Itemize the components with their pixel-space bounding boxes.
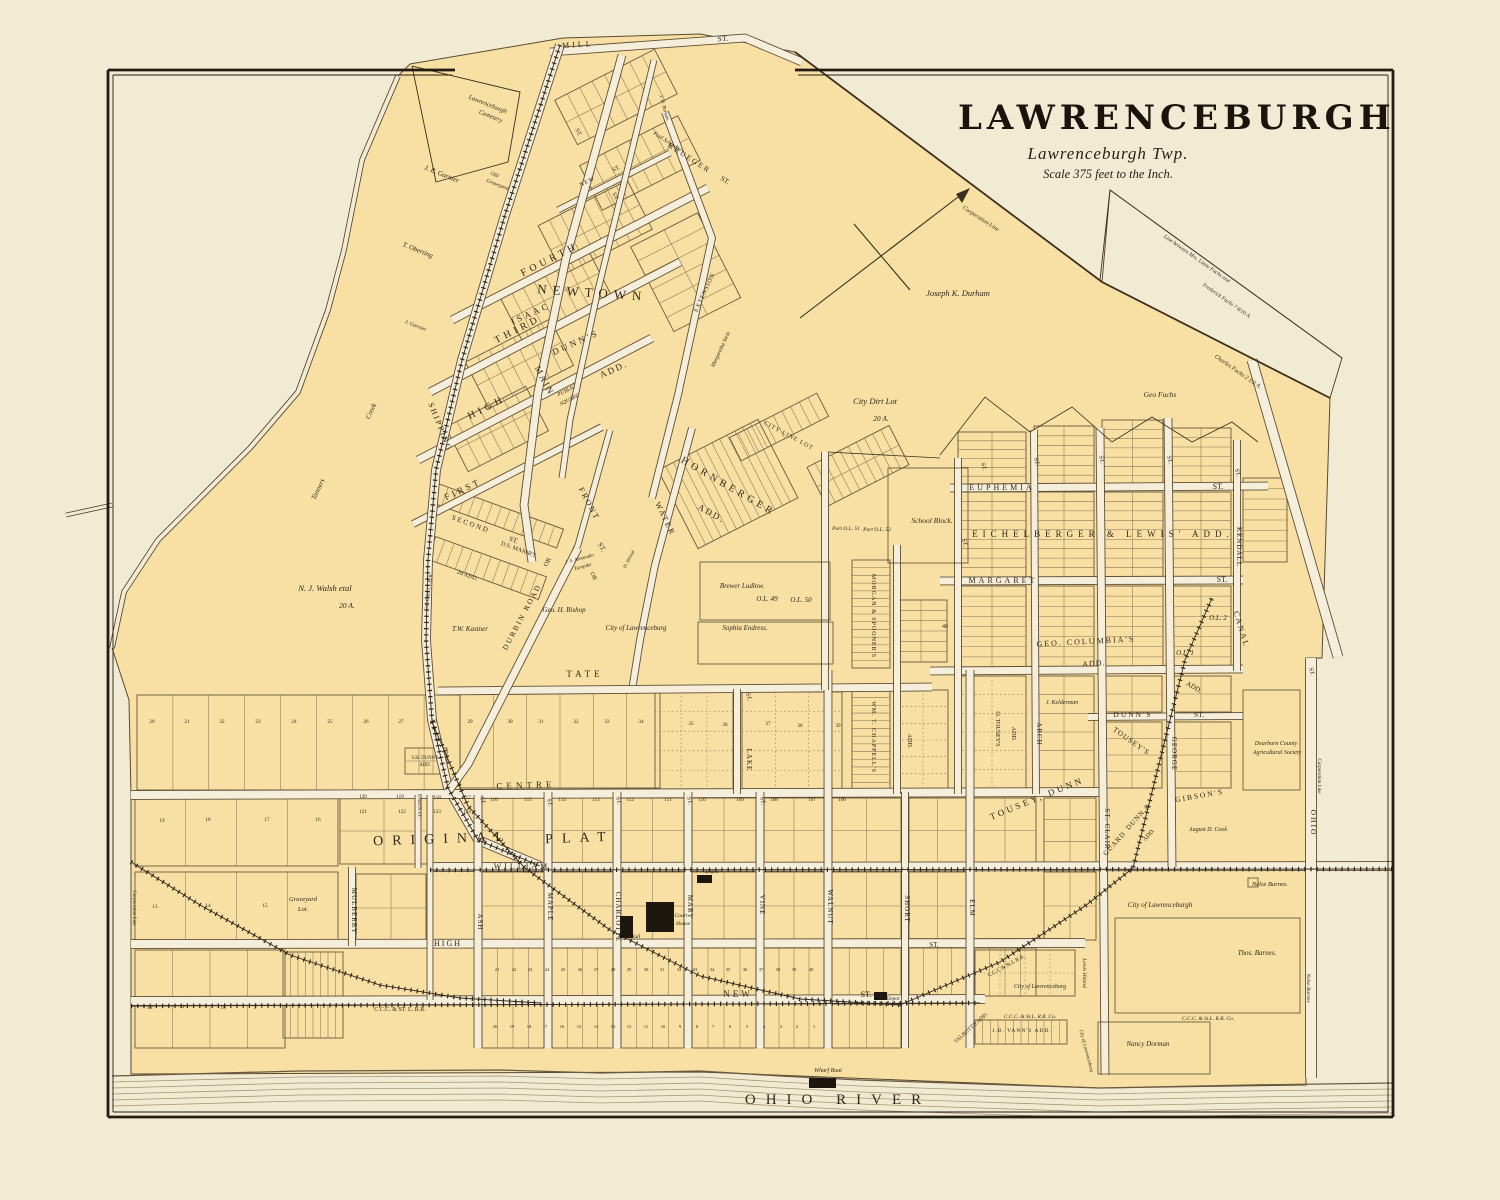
lot-number: 11: [180, 1004, 185, 1010]
map-label: C.C.C. & St.L. R.R. Co.: [1004, 1014, 1056, 1020]
lot-number: 32: [573, 719, 579, 725]
map-label: Brewer Ludlow.: [720, 582, 765, 590]
lot-number: 22: [219, 719, 225, 725]
map-label: MARGARET: [969, 576, 1038, 585]
lot-number: 10: [661, 1024, 666, 1029]
lot-number: 28: [431, 719, 437, 725]
lot-number: 112: [626, 797, 634, 803]
map-label: WILLIAM: [494, 862, 551, 871]
street: [131, 943, 1085, 944]
map-label: Wharf Boat: [814, 1067, 842, 1074]
lot-number: 30: [507, 719, 513, 725]
lot-number: 123: [433, 809, 441, 815]
lot-number: 11: [644, 1024, 649, 1029]
map-label: Thos. Barnes.: [1238, 949, 1277, 957]
map-label: City of Lawrenceburg: [606, 624, 667, 632]
lot-number: 18: [527, 1024, 532, 1029]
map-label: Graveyard: [289, 896, 318, 903]
map-label: C.C.C. & St.L. R.R. Co.: [1182, 1016, 1234, 1022]
lot-number: 26: [363, 719, 369, 725]
lot-number: 21: [184, 719, 190, 725]
lot-number: 124: [463, 809, 471, 815]
map-label: Part O.L. 51: [831, 526, 860, 532]
map-label: Nelse Barnes.: [1251, 881, 1288, 888]
map-label: City of Lawrenceburg: [1014, 983, 1066, 990]
map-label: O.L. 2: [1209, 614, 1227, 622]
lot-number: 20: [493, 1024, 498, 1029]
map-label: WALNUT: [826, 889, 834, 925]
lot-number: 37: [765, 721, 771, 727]
lot-number: 25: [561, 967, 566, 972]
lot-number: 40: [809, 967, 814, 972]
lot-number: 39: [792, 967, 797, 972]
map-label: 40: [942, 624, 948, 630]
map-label: ST.: [861, 990, 872, 999]
map-label: SHORT: [903, 895, 911, 923]
map-label: VINE: [758, 895, 766, 916]
map-label: PLAT: [545, 830, 615, 847]
lot-number: 108: [770, 797, 778, 803]
map-canvas: MILLST.KRUEGERST.Paul SchindlerJ. H. Bur…: [0, 0, 1500, 1200]
map-label: LAKE: [745, 749, 753, 772]
map-label: ADD.: [419, 763, 431, 768]
lot-number: 16: [560, 1024, 565, 1029]
lot-number: 9: [254, 1005, 257, 1011]
map-label: GEORGE: [1170, 737, 1178, 771]
map-label: Geo. H. Bishop: [542, 606, 586, 614]
map-label: Dearborn County: [1254, 741, 1298, 747]
lot-number: 109: [736, 797, 744, 803]
lot-number: 24: [545, 967, 550, 972]
lot-number: 35: [688, 721, 694, 727]
map-label: Lewis Hiland: [1081, 957, 1087, 988]
lot-number: 27: [398, 719, 404, 725]
street: [131, 999, 985, 1001]
lot-number: 23: [255, 719, 261, 725]
map-label: ADD.: [1082, 658, 1106, 668]
map-label: Corporation Line: [131, 890, 136, 926]
map-label: O.L. 1: [1176, 649, 1194, 657]
map-label: S.H. DUNN'S: [411, 756, 438, 761]
lot-number: 121: [359, 809, 367, 815]
lot-number: 37: [759, 967, 764, 972]
map-label: City of Lawrenceburgh: [1128, 901, 1193, 909]
map-label: Sophia Endress.: [722, 624, 767, 632]
lot-number: 14: [205, 903, 211, 909]
map-label: Court: [675, 913, 688, 919]
building-footprint: [874, 992, 887, 1000]
map-label: C.C.C. & ST. L. R.R.: [374, 1007, 426, 1013]
lot-number: 34: [710, 967, 715, 972]
map-label: OHIO: [1309, 810, 1318, 837]
map-label: ST.: [1194, 710, 1204, 719]
lot-number: 33: [693, 967, 698, 972]
lot-number: 29: [627, 967, 632, 972]
lot-number: 35: [726, 967, 731, 972]
building-footprint: [697, 875, 712, 883]
lot-number: 28: [611, 967, 616, 972]
lot-number: 122: [398, 809, 406, 815]
lot-number: 15: [262, 903, 268, 909]
map-label: N. J. Walsh etal: [297, 583, 352, 593]
lot-number: 117: [463, 795, 471, 801]
map-label: WM. T. CHAPPELL'S: [870, 701, 876, 773]
lot-number: 114: [558, 797, 566, 803]
map-label: Corporation Line: [1316, 758, 1321, 794]
lot-number: 106: [838, 797, 846, 803]
lot-number: 14: [594, 1024, 599, 1029]
map-label: EICHELBERGER & LEWIS' ADD.: [972, 529, 1234, 539]
map-label: O.L. 49: [756, 595, 778, 603]
lot-number: 13: [611, 1024, 616, 1029]
map-label: ELM: [968, 899, 976, 917]
map-label: CENTRE: [496, 779, 555, 791]
map-label: CHARLOTTE: [614, 892, 622, 943]
street: [930, 669, 1243, 671]
map-label: Lot.: [297, 906, 309, 913]
lot-number: 39: [835, 723, 841, 729]
map-label: NEW: [723, 989, 753, 999]
map-label: Joseph K. Durham: [926, 288, 990, 298]
lot-number: 118: [433, 795, 441, 801]
map-label: August D. Cook: [1188, 827, 1228, 833]
street: [1088, 716, 1243, 717]
lot-number: 34: [638, 719, 644, 725]
lot-number: 115: [524, 797, 532, 803]
lot-number: 19: [159, 818, 165, 824]
lot-number: 29: [467, 719, 473, 725]
lot-number: 38: [797, 723, 803, 729]
map-label: Part O.L. 52: [862, 527, 891, 533]
map-label: UNION ST.: [416, 794, 421, 818]
lot-number: 21: [495, 967, 500, 972]
lot-number: 36: [743, 967, 748, 972]
map-label: ADD.: [1010, 727, 1016, 742]
lot-number: 38: [776, 967, 781, 972]
map-label: 20 A.: [873, 414, 889, 423]
map-label: House: [675, 921, 691, 927]
lot-number: 111: [664, 797, 672, 803]
map-label: DUNN'S: [1113, 710, 1152, 719]
map-label: Jail: [632, 934, 641, 940]
map-label: City Dirt Lot: [853, 396, 898, 406]
map-label: MULBERRY: [350, 888, 358, 935]
lot-number: 32: [677, 967, 682, 972]
map-label: ST.: [717, 34, 728, 44]
lot-number: 36: [722, 722, 728, 728]
map-label: J. Kelderman: [1046, 700, 1078, 706]
lot-number: 25: [327, 719, 333, 725]
map-label: ST.: [929, 941, 939, 949]
map-label: Agricultural Society: [1252, 750, 1302, 756]
lot-number: 31: [538, 719, 544, 725]
street: [438, 687, 932, 691]
map-label: Depot: [885, 996, 900, 1002]
map-label: ARCH: [1035, 722, 1043, 745]
map-label: ST.: [1213, 482, 1224, 491]
lot-number: 30: [644, 967, 649, 972]
lot-number: 12: [147, 1005, 153, 1011]
lot-number: 23: [528, 967, 533, 972]
map-label: Geo Fuchs: [1144, 390, 1177, 399]
map-label: OHIO RIVER: [745, 1092, 931, 1108]
map-label: 20 A.: [339, 601, 355, 610]
lot-number: 113: [592, 797, 600, 803]
lawrenceburgh-plat-map: MILLST.KRUEGERST.Paul SchindlerJ. H. Bur…: [0, 0, 1500, 1200]
lot-number: 119: [396, 794, 404, 800]
lot-number: 22: [512, 967, 517, 972]
map-label: School Block.: [911, 516, 952, 525]
lot-number: 18: [205, 817, 211, 823]
map-label: T.W. Kastner: [452, 625, 488, 633]
lot-number: 110: [698, 797, 706, 803]
lot-number: 15: [577, 1024, 582, 1029]
map-label: KENDALL: [1235, 527, 1243, 567]
lot-number: 17: [543, 1024, 548, 1029]
lot-number: 20: [149, 719, 155, 725]
lot-number: 27: [594, 967, 599, 972]
lot-number: 33: [604, 719, 610, 725]
street: [428, 866, 1392, 867]
lot-number: 31: [660, 967, 665, 972]
map-label: MORGAN & SPOONER'S: [870, 574, 876, 658]
lot-number: 120: [359, 794, 367, 800]
lot-number: 26: [578, 967, 583, 972]
lot-number: 13: [152, 904, 158, 910]
map-label: J.B. VANN'S ADD.: [992, 1028, 1051, 1034]
map-label: O. TOUSEY'S: [994, 711, 1000, 746]
map-label: MAPLE: [546, 893, 554, 922]
lot-number: 19: [510, 1024, 515, 1029]
map-label: Nancy Dorman: [1126, 1040, 1170, 1048]
lot-number: 116: [490, 797, 498, 803]
map-label: Depot: [704, 869, 719, 875]
map-label: EUPHEMIA: [969, 483, 1034, 492]
building-footprint: [646, 902, 674, 932]
lot-number: 17: [264, 817, 270, 823]
map-label: ASH: [476, 913, 484, 930]
map-label: HIGH: [434, 939, 462, 948]
map-label: ADD.: [906, 734, 912, 749]
lot-number: 12: [627, 1024, 632, 1029]
lot-number: 16: [315, 817, 321, 823]
lot-number: 10: [220, 1005, 226, 1011]
street: [1168, 418, 1172, 867]
lot-number: 24: [291, 719, 297, 725]
map-label: TATE: [566, 669, 603, 679]
lot-number: 107: [808, 797, 816, 803]
map-label: O.L. 50: [790, 596, 812, 604]
building-footprint: [809, 1078, 836, 1088]
map-label: ST.: [1217, 575, 1228, 584]
map-label: Nelse Barnes: [1305, 972, 1311, 1002]
